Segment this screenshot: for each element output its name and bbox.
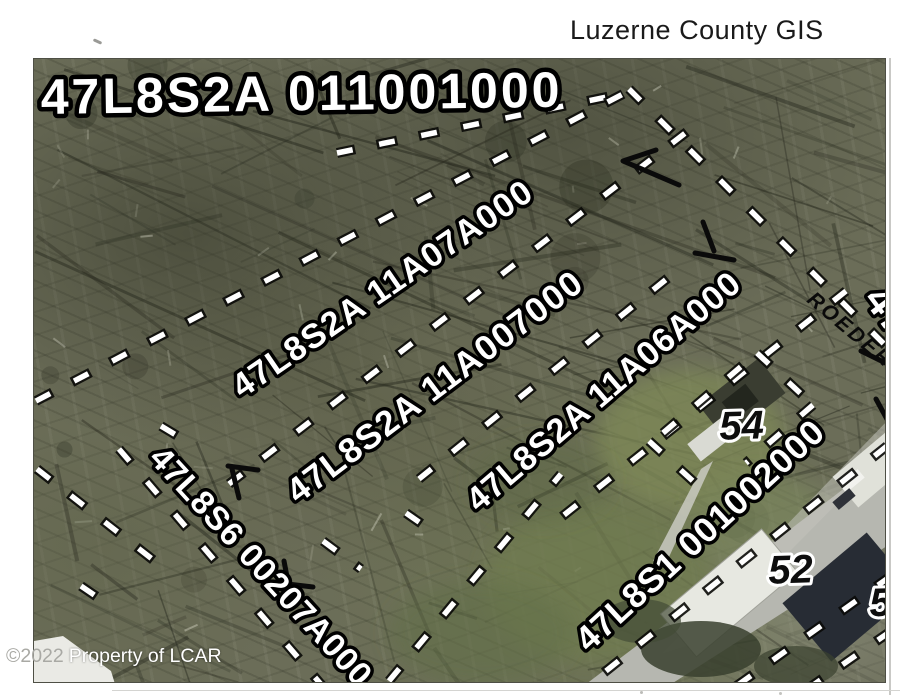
terrain-texture-layer (33, 58, 886, 683)
parcel-boundary-dashed-line (796, 631, 886, 683)
parcel-label-parcel-11A06A000: 47L8S2A 11A06A000 (459, 264, 749, 519)
parcel-boundary-dashed-line (229, 121, 701, 484)
house-54-roof-shadow (722, 384, 759, 420)
parcel-boundary-dashed-line (746, 405, 813, 463)
parcel-boundary-dashed-line (663, 353, 757, 433)
house-54-wing (687, 415, 738, 462)
parcel-boundary-dashed-line (161, 426, 186, 441)
house-number-label: 54 (719, 403, 765, 449)
parcel-boundary-dashed-line (81, 586, 106, 603)
street-name-label: ROEDER (803, 288, 886, 373)
lawn-patch (689, 475, 833, 567)
parked-car-dark (832, 488, 855, 510)
parcel-boundary-dashed-line (629, 89, 886, 347)
copyright: ©2022Property of LCAR (6, 645, 222, 668)
canopy-blob (601, 599, 681, 643)
copyright-owner: Property of LCAR (69, 645, 222, 667)
dark-roof-house (782, 533, 886, 662)
lawn-patch (486, 499, 716, 663)
parcel-boundary-dashed-line (649, 441, 706, 493)
lawn-patch (471, 439, 611, 523)
parcel-boundary-dashed-line (406, 513, 429, 529)
canopy-blob (754, 646, 838, 683)
buildings (653, 358, 886, 661)
lawn-patch (389, 581, 573, 683)
driveway (653, 461, 713, 561)
tree-canopy (601, 599, 838, 683)
lawn-clearings (389, 369, 833, 683)
parcel-label-main-parcel: 47L8S2A 011001000 (40, 62, 563, 125)
pen-mark (279, 583, 313, 587)
parcel-boundary-dashed-line (37, 469, 161, 566)
parcel-boundary-dashed-line (323, 541, 361, 569)
house-52-roof (660, 529, 797, 657)
map-canvas: 47L8S2A 01100100047L8S2A 11A07A00047L8S2… (33, 58, 886, 683)
pen-mark (876, 399, 886, 432)
canopy-blob (641, 621, 761, 677)
pen-annotations-layer (228, 150, 886, 587)
parcel-boundary-dashed-line (337, 93, 626, 153)
house-number-label: 5 (869, 581, 886, 626)
parcel-labels-layer: 47L8S2A 01100100047L8S2A 11A07A00047L8S2… (40, 62, 886, 683)
parcel-boundaries-layer (36, 89, 886, 683)
pen-mark (695, 253, 734, 260)
house-number-label: 52 (768, 547, 814, 593)
scan-dust-speck (93, 38, 102, 44)
aerial-photo-background (34, 59, 886, 683)
copyright-year: ©2022 (6, 645, 64, 667)
parcel-boundary-dashed-line (561, 446, 886, 683)
pen-mark (623, 150, 679, 185)
parcel-label-parcel-edge-partial: 47 (855, 277, 886, 344)
parcel-boundary-dashed-line (389, 474, 561, 681)
map-features-layer: 47L8S2A 01100100047L8S2A 11A07A00047L8S2… (33, 58, 886, 683)
road-surface (569, 456, 886, 683)
pen-mark (232, 469, 239, 498)
road-shoulder (663, 421, 886, 653)
scan-artifact-vertical-line (889, 58, 891, 695)
tree-streaks (35, 58, 886, 683)
pen-mark (861, 351, 886, 370)
house-right-edge-roof (833, 431, 886, 508)
parcel-label-parcel-11A07A000: 47L8S2A 11A07A000 (225, 172, 541, 405)
gis-map-page: Luzerne County GIS (0, 0, 900, 695)
pen-mark (703, 222, 714, 251)
scan-artifact-horizontal-line (112, 690, 900, 691)
parcel-boundary-dashed-line (721, 576, 886, 683)
parcel-boundary-dashed-line (757, 353, 813, 405)
house-54-roof (699, 358, 786, 439)
parcel-boundary-dashed-line (419, 269, 679, 479)
parked-car-light (839, 469, 864, 493)
scan-dust-dot (640, 691, 643, 694)
lawn-patch (596, 369, 786, 513)
pen-mark (284, 561, 288, 582)
parcel-label-parcel-001002000: 47L8S1 001002000 (568, 412, 833, 659)
page-title: Luzerne County GIS (570, 15, 824, 46)
parcel-boundary-dashed-line (554, 291, 846, 523)
parcel-label-parcel-11A007000: 47L8S2A 11A007000 (279, 263, 591, 511)
pen-mark (228, 466, 258, 470)
parcel-boundary-dashed-line (36, 94, 623, 401)
